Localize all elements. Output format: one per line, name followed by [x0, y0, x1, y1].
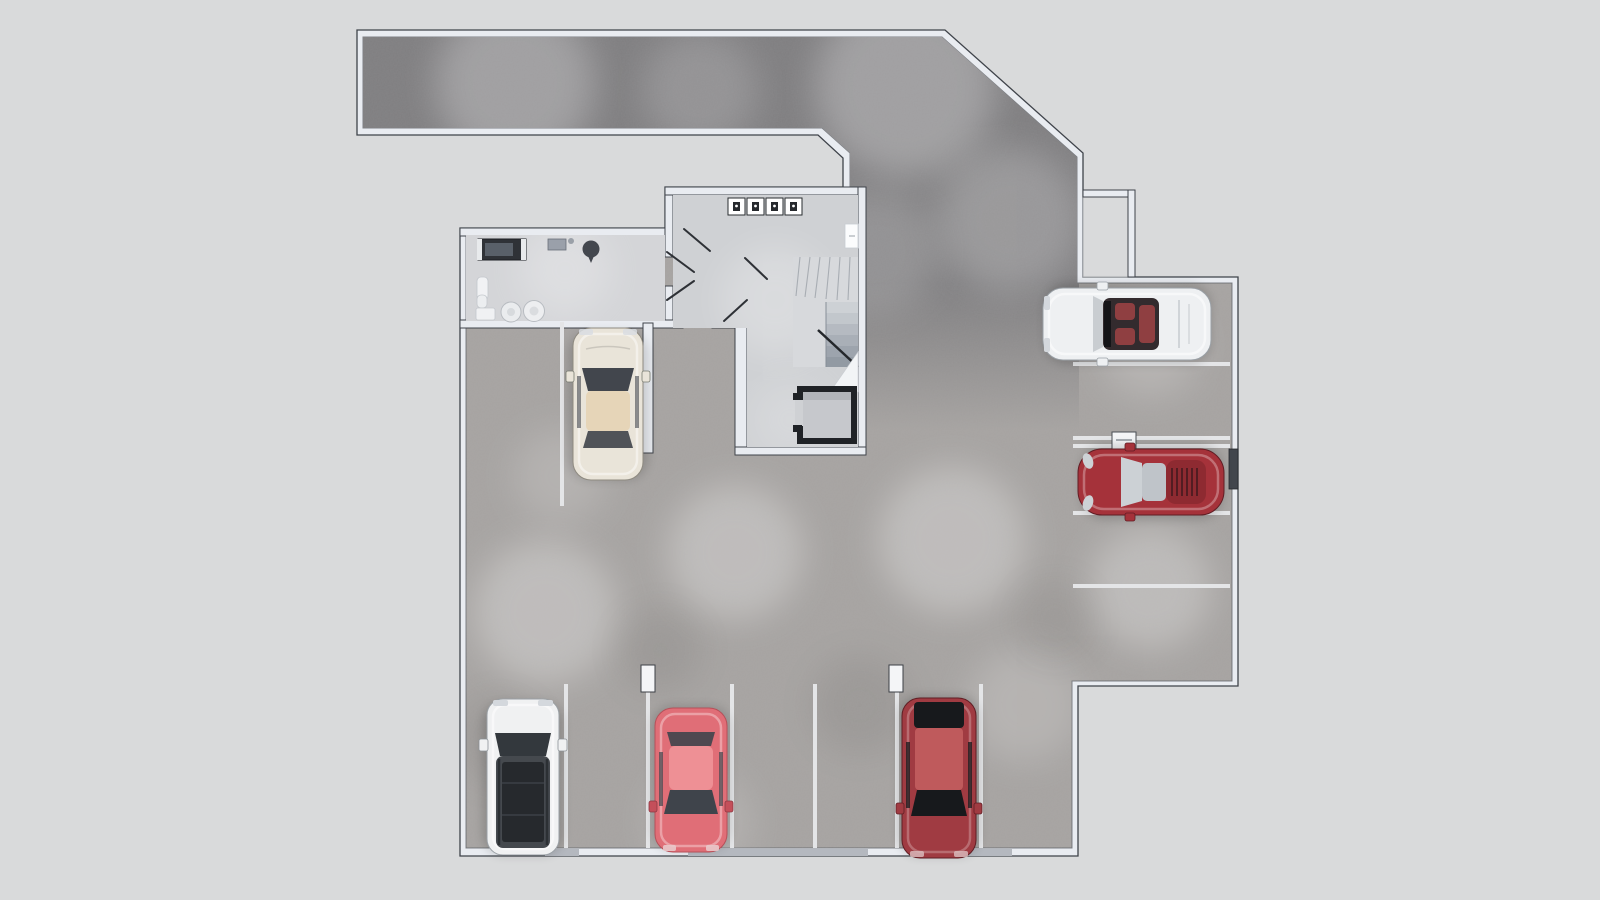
car-mirror	[1125, 443, 1135, 451]
stair-treads-lower	[826, 302, 858, 367]
car-side-window	[659, 752, 663, 806]
wall-core-bottom	[735, 447, 866, 455]
car-roof	[915, 728, 963, 790]
car-rear-glass-panel	[914, 702, 964, 728]
technical-room	[466, 224, 665, 322]
wall-lightwell-top	[1083, 190, 1135, 197]
wall-lightwell-right	[1128, 190, 1135, 277]
wall-niche	[1229, 449, 1238, 489]
lightwell-pocket	[1083, 197, 1128, 277]
car-mirror	[896, 803, 904, 814]
wall-utility-top	[460, 228, 673, 236]
column-post	[889, 665, 903, 692]
car-headlight	[493, 700, 508, 706]
meter-dial	[754, 205, 757, 208]
car-windshield	[1121, 457, 1142, 507]
meter-box	[747, 198, 764, 215]
car-windshield	[664, 790, 718, 814]
meter-dial	[792, 205, 795, 208]
car-seat	[1115, 328, 1135, 345]
meter-box	[728, 198, 745, 215]
car-windshield	[911, 790, 967, 816]
car-roof	[586, 391, 630, 431]
car-mirror	[479, 739, 488, 751]
wall-core-right	[858, 187, 866, 455]
car-mirror	[1125, 513, 1135, 521]
car-mirror	[725, 801, 733, 812]
floorplan-render	[0, 0, 1600, 900]
car-side-window	[968, 742, 972, 808]
elevator-door-jamb	[793, 425, 802, 432]
car-red-sports	[1078, 443, 1224, 521]
car-windshield	[582, 368, 634, 391]
car-panoramic-sunroof	[502, 762, 544, 842]
car-side-window	[719, 752, 723, 806]
parking-line	[895, 684, 899, 848]
stair-tread	[826, 302, 858, 313]
elevator	[793, 386, 857, 444]
elevator-door-jamb	[793, 393, 802, 400]
parking-line	[646, 684, 650, 848]
car-coral-hatchback	[649, 706, 733, 852]
stair-tread	[826, 324, 858, 335]
car-windshield	[1093, 296, 1103, 352]
meter-dial	[735, 205, 738, 208]
electrical-cabinet-panel	[485, 243, 513, 256]
elevator-cab-shade	[803, 392, 851, 400]
parking-line	[1073, 584, 1230, 588]
wall-fixture	[476, 308, 495, 320]
car-mirror	[566, 371, 574, 382]
car-headlight	[538, 700, 553, 706]
cabinet-endcap	[477, 239, 482, 260]
column-post	[641, 665, 655, 692]
car-headlight	[706, 845, 719, 851]
stair-tread	[826, 313, 858, 324]
car-mirror	[1097, 282, 1108, 290]
car-side-window	[906, 742, 910, 808]
elevator-door-opening	[795, 400, 803, 426]
valve-knob	[568, 238, 574, 244]
water-tank-cap	[507, 308, 515, 316]
cabinet-endcap	[521, 239, 526, 260]
wall-fixture	[477, 295, 487, 308]
parking-line	[560, 322, 564, 506]
car-side-window	[635, 376, 639, 428]
car-rear-window	[667, 732, 715, 746]
car-headlight	[579, 329, 593, 335]
car-seat	[1115, 303, 1135, 320]
car-mirror	[974, 803, 982, 814]
car-rear-bench	[1139, 305, 1155, 343]
car-roof	[669, 746, 713, 790]
car-white-convertible	[1043, 282, 1211, 366]
parking-line	[979, 684, 983, 848]
wall-core-left-upper	[665, 195, 673, 257]
meter-dial	[773, 205, 776, 208]
car-headlight	[954, 851, 968, 857]
car-headlight	[1044, 296, 1050, 310]
parking-line	[564, 684, 568, 848]
car-mirror	[642, 371, 650, 382]
car-dark-red-sedan	[896, 696, 982, 858]
car-windshield	[495, 733, 551, 756]
car-mirror	[1097, 358, 1108, 366]
meter-box	[766, 198, 783, 215]
car-headlight	[623, 329, 637, 335]
lightwell-floor	[1083, 197, 1128, 277]
expansion-tank	[583, 241, 600, 258]
parking-line	[730, 684, 734, 848]
meter-box	[785, 198, 802, 215]
car-headlight	[910, 851, 924, 857]
car-mirror	[649, 801, 657, 812]
car-headlight	[663, 845, 676, 851]
water-tank-cap	[530, 307, 539, 316]
car-roof	[1142, 463, 1166, 501]
parking-line	[813, 684, 817, 848]
car-mirror	[558, 739, 567, 751]
car-headlight	[1044, 338, 1050, 352]
car-white-suv	[479, 699, 567, 855]
car-cream-coupe	[566, 328, 650, 480]
car-side-window	[577, 376, 581, 428]
wall-core-top	[665, 187, 866, 195]
wall-mounted-box	[548, 239, 566, 250]
car-rear-window	[583, 431, 633, 448]
parking-line	[1073, 436, 1230, 440]
car-dashboard	[1104, 301, 1111, 347]
